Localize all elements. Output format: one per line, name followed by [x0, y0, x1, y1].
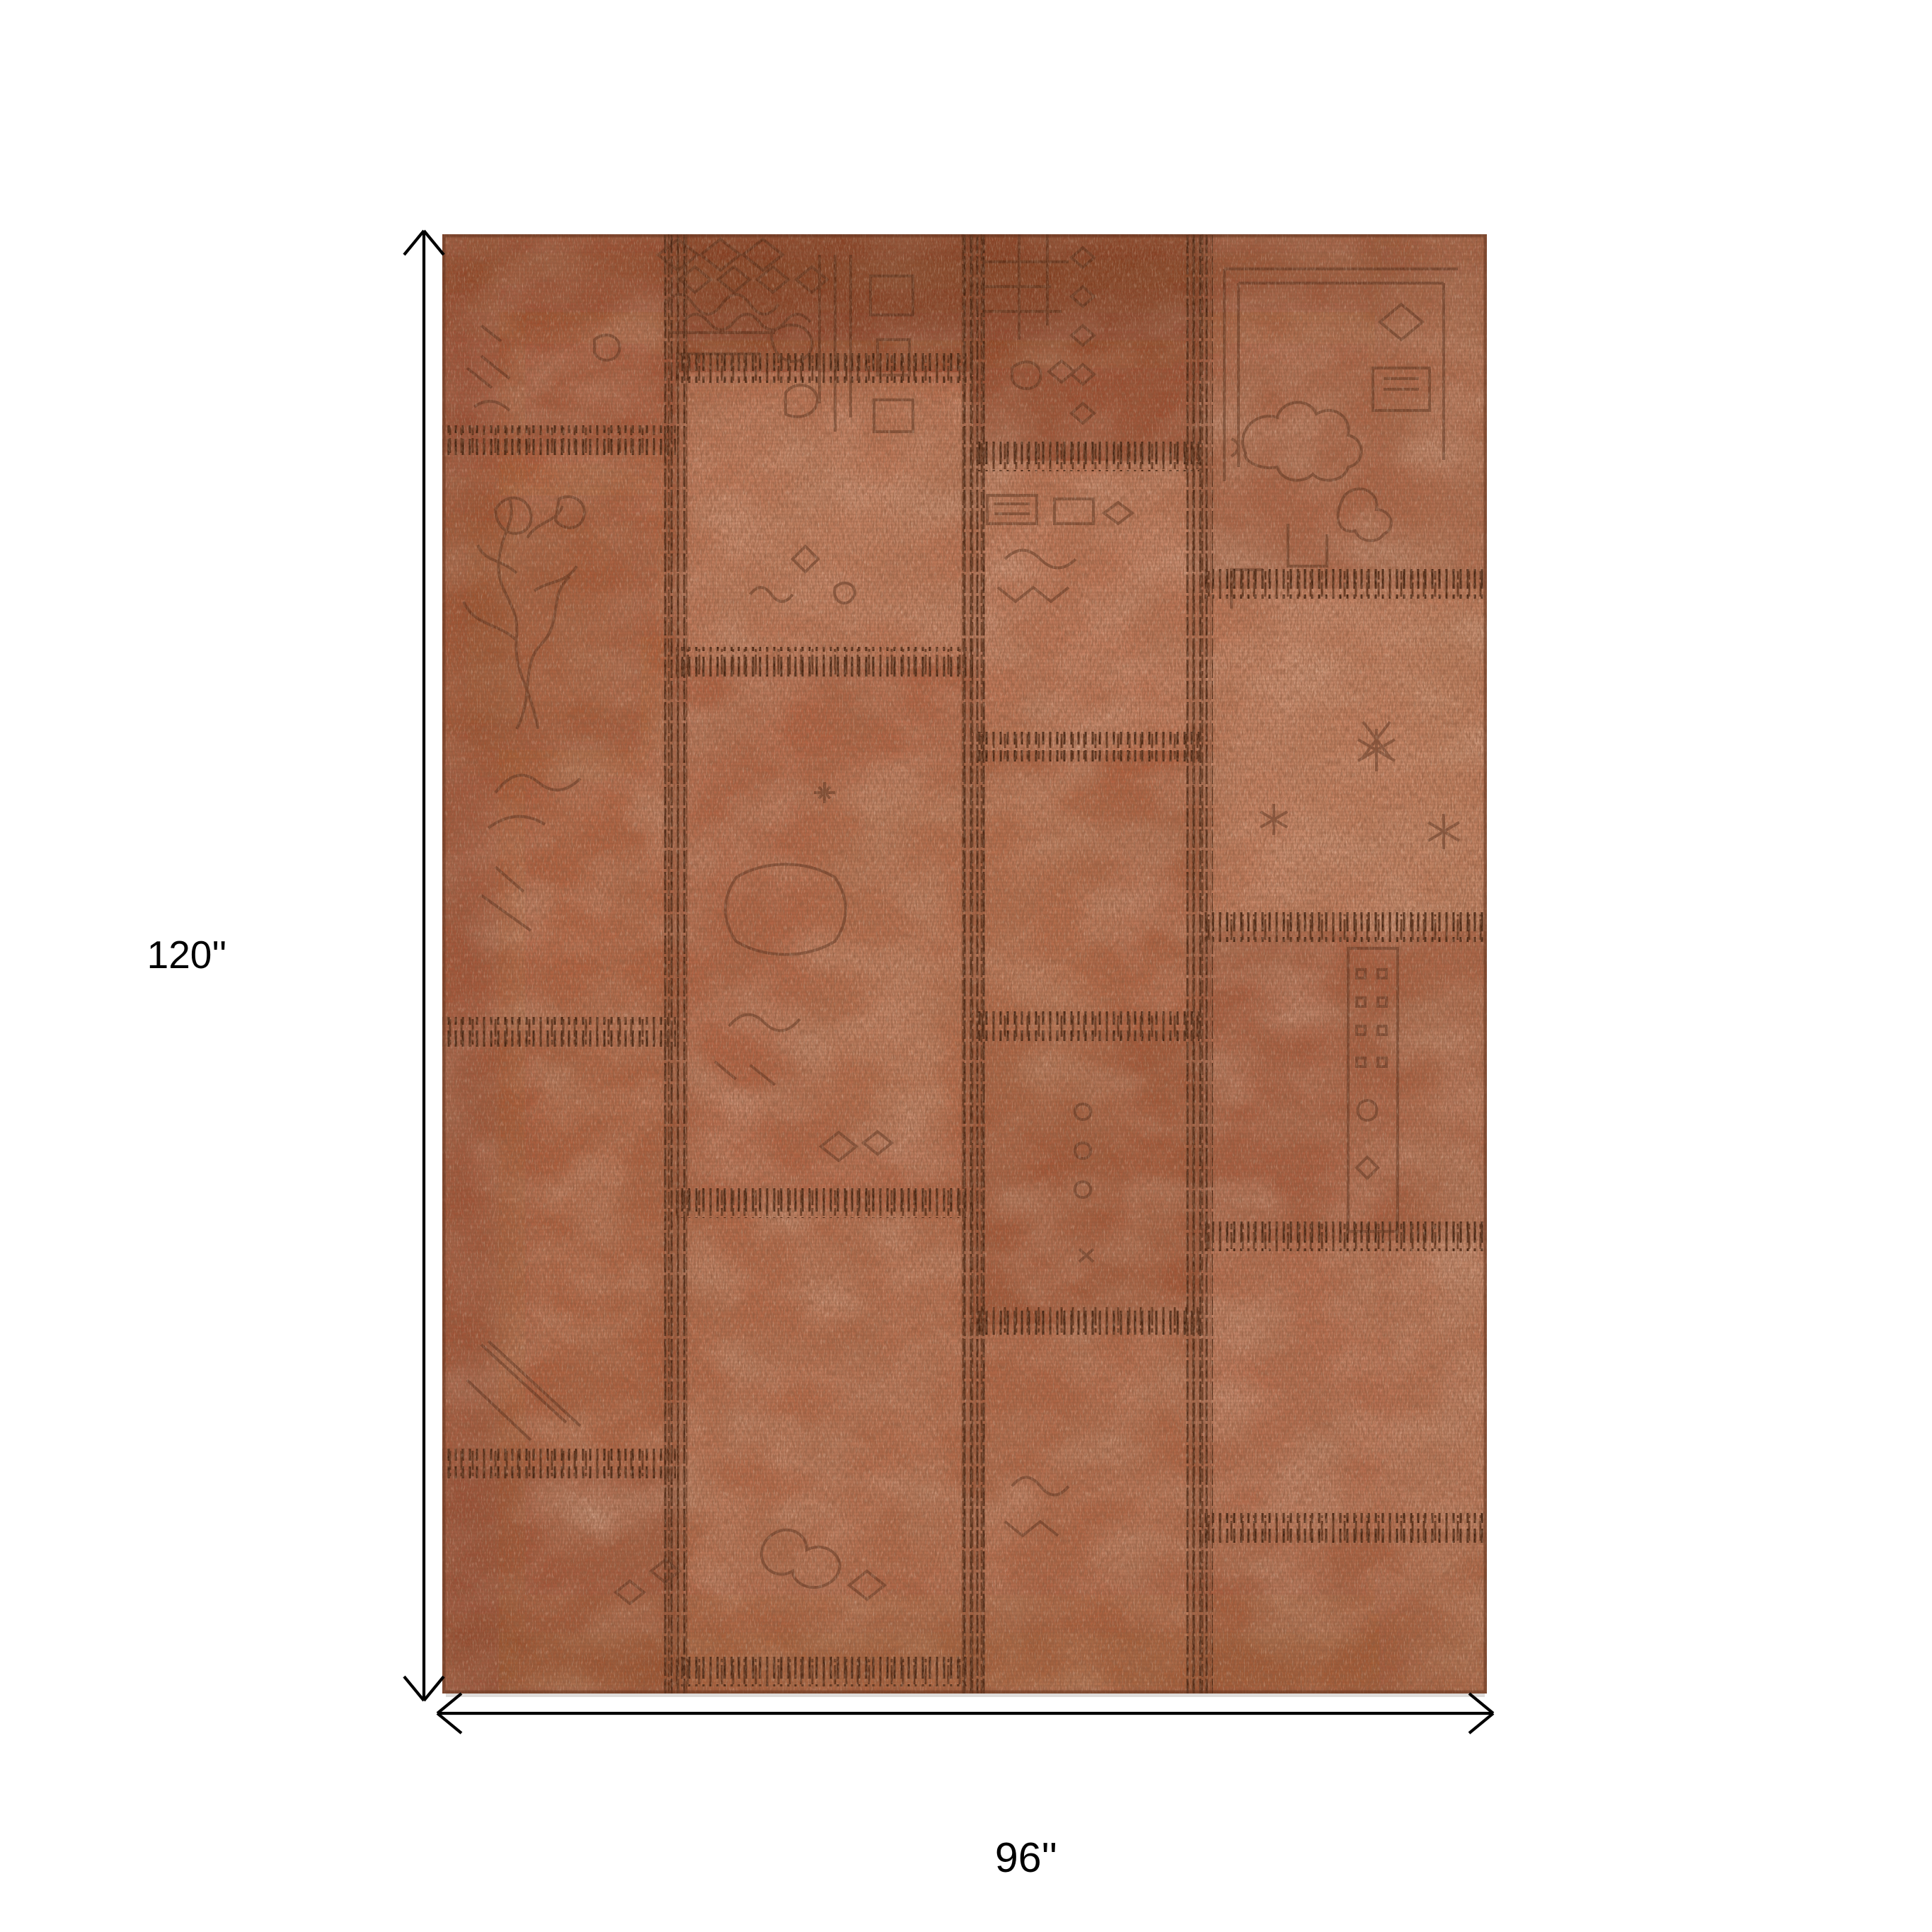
- svg-text:120'': 120'': [147, 933, 227, 977]
- svg-text:96'': 96'': [995, 1834, 1057, 1881]
